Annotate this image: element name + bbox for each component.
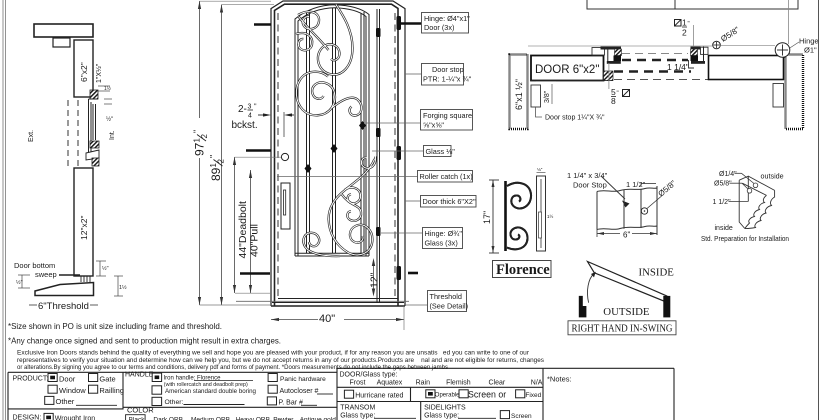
svg-text:Ø5/8": Ø5/8" — [719, 25, 741, 44]
svg-text:DESIGN:: DESIGN: — [13, 414, 42, 420]
svg-text:⅛": ⅛" — [537, 167, 543, 172]
svg-text:P. Bar #: P. Bar # — [279, 400, 303, 407]
svg-text:Clear: Clear — [489, 379, 506, 386]
svg-text:Hinge: Ø4"x1": Hinge: Ø4"x1" — [424, 14, 470, 23]
svg-text:1½: 1½ — [547, 213, 554, 219]
svg-text:Heavy ORB: Heavy ORB — [236, 417, 270, 420]
svg-text:Window: Window — [59, 386, 86, 395]
svg-text:bckst.: bckst. — [232, 120, 258, 131]
svg-text:Rain: Rain — [416, 379, 431, 386]
svg-text:SIDELIGHTS: SIDELIGHTS — [424, 405, 466, 412]
svg-text:Fixed: Fixed — [525, 392, 541, 399]
svg-text:89: 89 — [209, 167, 223, 181]
svg-text:1: 1 — [682, 18, 687, 28]
svg-text:1½: 1½ — [119, 284, 127, 291]
svg-text:*Notes:: *Notes: — [547, 375, 572, 384]
svg-text:Door bottom: Door bottom — [14, 261, 55, 270]
svg-text:": " — [209, 155, 219, 158]
svg-text:": " — [617, 91, 619, 97]
svg-text:RIGHT HAND IN-SWING: RIGHT HAND IN-SWING — [572, 324, 673, 335]
svg-text:Ø5/8": Ø5/8" — [714, 181, 732, 188]
svg-text:12": 12" — [369, 272, 381, 288]
svg-text:Exclusive Iron Doors stands be: Exclusive Iron Doors stands behind the q… — [17, 350, 529, 357]
svg-text:Pewter: Pewter — [273, 417, 294, 420]
svg-text:PRODUCT:: PRODUCT: — [13, 376, 49, 383]
svg-text:Hinge: Ø¾": Hinge: Ø¾" — [425, 229, 463, 238]
svg-text:DOOR/Glass type:: DOOR/Glass type: — [340, 371, 398, 378]
svg-text:Door Stop: Door Stop — [573, 181, 607, 190]
svg-text:Gate: Gate — [99, 375, 115, 384]
svg-text:Ø1/4": Ø1/4" — [719, 171, 737, 178]
svg-text:Railling: Railling — [99, 386, 124, 395]
svg-text:Std. Preparation for Installat: Std. Preparation for Installation — [701, 234, 789, 243]
svg-text:Wrought Iron: Wrought Iron — [55, 416, 95, 420]
svg-text:Ext.: Ext. — [28, 130, 35, 142]
svg-text:PTR: 1-¼"x ¾": PTR: 1-¼"x ¾" — [423, 75, 472, 84]
svg-text:1 1/2": 1 1/2" — [713, 199, 732, 206]
svg-text:40"Pull: 40"Pull — [249, 224, 261, 257]
svg-text:½": ½" — [102, 265, 109, 272]
svg-text:8: 8 — [611, 96, 616, 106]
svg-text:Roller catch (1x): Roller catch (1x) — [420, 172, 473, 181]
svg-text:DOOR 6"x2": DOOR 6"x2" — [535, 64, 599, 76]
svg-text:Other: Other — [56, 397, 75, 406]
svg-text:6": 6" — [623, 231, 630, 240]
svg-text:6"Threshold: 6"Threshold — [38, 301, 89, 312]
svg-text:American standard double borin: American standard double boring — [165, 388, 256, 395]
svg-text:2-: 2- — [238, 104, 247, 115]
svg-text:Screen: Screen — [511, 413, 532, 420]
svg-text:2: 2 — [682, 28, 687, 38]
svg-text:6"x1 ½": 6"x1 ½" — [514, 79, 524, 110]
svg-text:": " — [688, 22, 690, 28]
svg-text:3: 3 — [248, 104, 252, 111]
svg-text:Other:: Other: — [165, 399, 184, 406]
svg-text:Glass type:: Glass type: — [340, 413, 375, 420]
svg-text:Operable: Operable — [435, 392, 460, 398]
svg-text:2: 2 — [200, 134, 209, 139]
svg-text:Hinge: Hinge — [799, 37, 819, 46]
svg-text:44"Deadbolt: 44"Deadbolt — [237, 201, 249, 259]
svg-text:1 1/4" x 3/4": 1 1/4" x 3/4" — [567, 171, 608, 180]
svg-text:Threshold: Threshold — [430, 292, 462, 301]
svg-text:Autocloser #: Autocloser # — [280, 388, 319, 395]
svg-text:Dark ORB: Dark ORB — [153, 417, 183, 420]
svg-text:40": 40" — [319, 313, 335, 325]
svg-text:1 1/2": 1 1/2" — [626, 180, 646, 189]
svg-text:(with rollercatch and deadbolt: (with rollercatch and deadbolt prep) — [164, 382, 248, 388]
svg-text:Black: Black — [129, 416, 146, 420]
svg-text:(See Detail): (See Detail) — [430, 302, 469, 311]
svg-text:OUTSIDE: OUTSIDE — [603, 306, 650, 318]
svg-text:representatives to verify your: representatives to verify your situation… — [17, 357, 544, 364]
svg-text:Int.: Int. — [109, 130, 116, 140]
svg-text:4: 4 — [248, 113, 252, 120]
svg-text:Glass (3x): Glass (3x) — [425, 239, 458, 248]
svg-text:17": 17" — [482, 211, 492, 224]
svg-text:Forging square: Forging square — [423, 111, 472, 120]
svg-text:INSIDE: INSIDE — [639, 267, 675, 279]
svg-text:2: 2 — [217, 159, 226, 164]
svg-text:N/A: N/A — [531, 379, 543, 386]
svg-text:1 1/4": 1 1/4" — [667, 62, 689, 72]
svg-text:6"x2": 6"x2" — [79, 62, 89, 82]
svg-text:Ø5/8": Ø5/8" — [657, 179, 678, 199]
svg-text:": " — [254, 104, 257, 111]
svg-text:sweep: sweep — [35, 270, 57, 279]
svg-text:Glass type:: Glass type: — [424, 413, 459, 420]
svg-text:½": ½" — [16, 279, 23, 286]
svg-text:Florence: Florence — [496, 262, 550, 278]
svg-text:1½: 1½ — [104, 85, 112, 92]
svg-text:Medium ORB: Medium ORB — [191, 417, 230, 420]
svg-text:⅝"x⅝": ⅝"x⅝" — [423, 121, 444, 130]
svg-text:": " — [192, 130, 202, 133]
svg-text:Ø1": Ø1" — [804, 46, 817, 55]
svg-text:TRANSOM: TRANSOM — [340, 405, 375, 412]
svg-text:Screen or: Screen or — [468, 390, 506, 400]
svg-text:Panic hardware: Panic hardware — [280, 376, 326, 383]
svg-text:*Any change once signed and se: *Any change once signed and sent to prod… — [8, 336, 281, 346]
svg-text:outside: outside — [761, 171, 784, 180]
svg-text:Door: Door — [59, 375, 76, 384]
svg-text:3/8": 3/8" — [544, 90, 551, 103]
svg-text:Glass ⅛": Glass ⅛" — [426, 147, 456, 156]
svg-text:or alterations.By signing you: or alterations.By signing you agree to o… — [17, 364, 448, 371]
svg-text:Antique gold: Antique gold — [300, 417, 337, 420]
svg-text:Door stop 1¼"X ¾": Door stop 1¼"X ¾" — [545, 115, 605, 122]
svg-text:Aquatex: Aquatex — [377, 379, 403, 386]
svg-text:Hurricane rated: Hurricane rated — [355, 393, 403, 400]
svg-text:Door thick 6"X2": Door thick 6"X2" — [423, 197, 476, 206]
svg-text:1"X½": 1"X½" — [95, 63, 103, 83]
svg-text:inside: inside — [715, 225, 733, 232]
svg-text:COLOR: COLOR — [127, 406, 154, 415]
svg-text:Door stop: Door stop — [432, 65, 464, 74]
svg-text:½": ½" — [106, 116, 113, 123]
svg-text:97: 97 — [193, 142, 207, 156]
svg-text:*Size shown in PO is unit size: *Size shown in PO is unit size including… — [8, 322, 222, 331]
svg-text:Frost: Frost — [350, 379, 366, 386]
svg-text:Door (3x): Door (3x) — [424, 23, 454, 32]
svg-text:12"x2": 12"x2" — [79, 216, 89, 240]
svg-text:HANDLE: HANDLE — [125, 372, 154, 379]
svg-text:Flemish: Flemish — [446, 379, 471, 386]
